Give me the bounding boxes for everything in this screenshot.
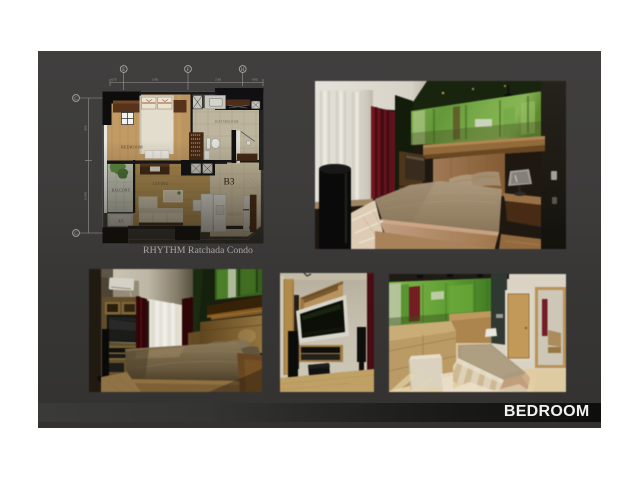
svg-text:675: 675 — [111, 78, 116, 82]
svg-text:695: 695 — [252, 78, 257, 82]
svg-text:H: H — [241, 68, 245, 73]
svg-text:G: G — [74, 232, 78, 237]
svg-text:2.85: 2.85 — [215, 78, 221, 82]
svg-text:500: 500 — [84, 125, 88, 130]
svg-text:F: F — [187, 68, 190, 73]
svg-text:6.475: 6.475 — [84, 192, 88, 200]
svg-text:3.95: 3.95 — [152, 78, 158, 82]
svg-text:E: E — [122, 68, 125, 73]
svg-text:BATHROOM: BATHROOM — [215, 120, 239, 124]
